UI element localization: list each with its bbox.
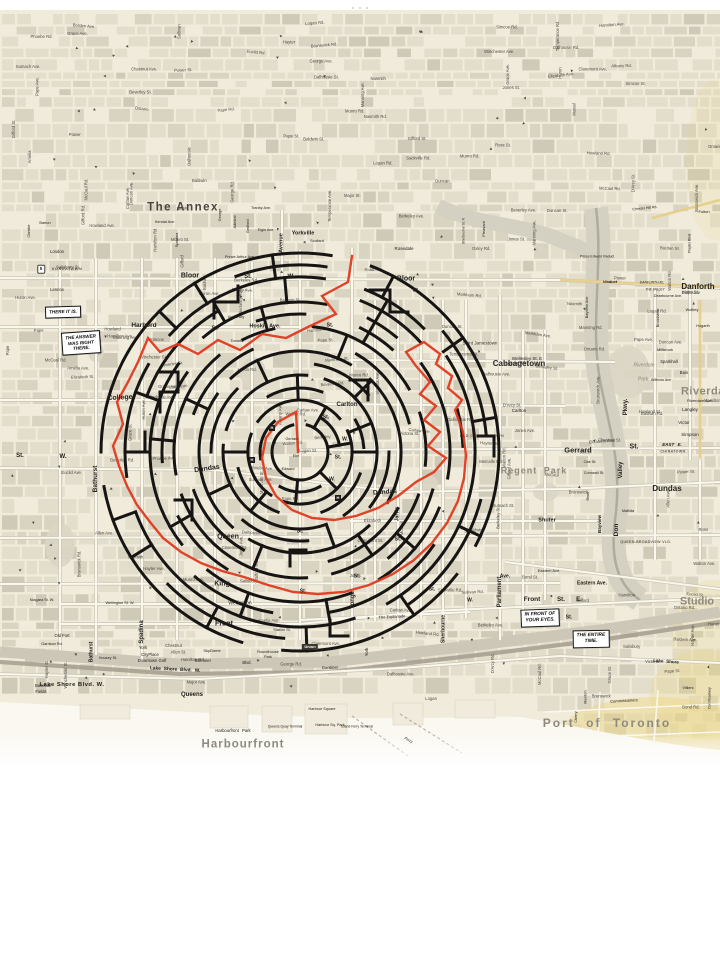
svg-text:Allen St.: Allen St. xyxy=(171,650,187,655)
svg-text:Borden St.: Borden St. xyxy=(660,245,680,251)
svg-text:Howland: Howland xyxy=(104,327,121,332)
svg-text:Baldwin: Baldwin xyxy=(192,178,207,183)
svg-text:Munro Rd.: Munro Rd. xyxy=(345,108,365,113)
svg-text:Sullivan Rd.: Sullivan Rd. xyxy=(461,589,484,595)
svg-text:Hamilton Rd.: Hamilton Rd. xyxy=(181,657,205,662)
svg-text:Dalhousie: Dalhousie xyxy=(187,147,192,166)
svg-text:McCaul Rd.: McCaul Rd. xyxy=(83,179,88,201)
svg-text:Brunswick Ave.: Brunswick Ave. xyxy=(694,184,699,212)
svg-text:Mutual: Mutual xyxy=(572,103,577,116)
svg-text:Hamilton Rd.: Hamilton Rd. xyxy=(152,227,157,251)
svg-text:Gifford: Gifford xyxy=(576,598,589,603)
svg-text:Sullivan: Sullivan xyxy=(176,24,181,39)
svg-text:Brunswick: Brunswick xyxy=(592,693,612,698)
svg-text:Logan: Logan xyxy=(425,696,437,701)
svg-text:Brunswick Rd.: Brunswick Rd. xyxy=(77,551,82,578)
svg-text:Pape: Pape xyxy=(5,345,10,355)
svg-text:Bond Rd.: Bond Rd. xyxy=(682,705,699,710)
svg-text:Ross St.: Ross St. xyxy=(495,142,511,147)
svg-text:Huron Ave.: Huron Ave. xyxy=(141,399,146,420)
svg-text:George Ave.: George Ave. xyxy=(310,58,333,63)
svg-text:Ontario Rd.: Ontario Rd. xyxy=(674,605,695,610)
svg-text:Berkeley Ave.: Berkeley Ave. xyxy=(399,213,425,218)
svg-text:Jones St.: Jones St. xyxy=(503,85,520,90)
svg-text:Power: Power xyxy=(69,132,81,137)
svg-text:Allen Ave.: Allen Ave. xyxy=(95,531,114,536)
svg-text:Grace St.: Grace St. xyxy=(607,666,612,684)
svg-text:George Rd.: George Rd. xyxy=(280,662,302,667)
svg-text:Claremont Ave.: Claremont Ave. xyxy=(579,67,608,72)
svg-text:Temperance Rd.: Temperance Rd. xyxy=(555,20,560,51)
svg-text:Ontario Rd.: Ontario Rd. xyxy=(584,347,605,352)
svg-text:Hayter St.: Hayter St. xyxy=(480,440,499,446)
svg-text:Oxley Rd.: Oxley Rd. xyxy=(472,246,490,251)
svg-text:McCaul: McCaul xyxy=(544,472,559,478)
svg-text:Hamilton: Hamilton xyxy=(619,593,636,598)
svg-text:D'Arcy Rd.: D'Arcy Rd. xyxy=(490,653,495,673)
svg-text:Power St.: Power St. xyxy=(174,67,192,73)
svg-text:Pape Ave.: Pape Ave. xyxy=(34,77,39,96)
svg-text:Major St.: Major St. xyxy=(682,289,699,294)
svg-text:Beverley St.: Beverley St. xyxy=(129,89,152,94)
svg-text:Nasmith: Nasmith xyxy=(567,301,583,306)
svg-text:Manning Ave.: Manning Ave. xyxy=(360,82,365,107)
svg-text:Jones St.: Jones St. xyxy=(508,236,525,241)
svg-text:Berkeley Ave.: Berkeley Ave. xyxy=(478,622,504,627)
svg-text:Simcoe St.: Simcoe St. xyxy=(626,81,646,86)
svg-text:Dalhousie Ave.: Dalhousie Ave. xyxy=(387,672,415,677)
svg-text:Elizabeth St.: Elizabeth St. xyxy=(71,374,95,380)
svg-text:Logan Rd.: Logan Rd. xyxy=(647,308,666,313)
svg-text:Sumach Ave.: Sumach Ave. xyxy=(16,64,41,69)
svg-text:Huron Ave.: Huron Ave. xyxy=(708,621,720,626)
svg-text:Beverley Ave.: Beverley Ave. xyxy=(511,208,537,213)
svg-text:Logan St.: Logan St. xyxy=(299,448,317,453)
svg-text:Munro Rd.: Munro Rd. xyxy=(349,373,369,378)
svg-text:Hayter St.: Hayter St. xyxy=(44,660,49,679)
svg-text:McCaul Rd.: McCaul Rd. xyxy=(537,663,542,685)
svg-text:Beverley Rd.: Beverley Rd. xyxy=(110,458,134,463)
svg-text:Simcoe Rd.: Simcoe Rd. xyxy=(496,25,518,30)
svg-text:Gifford St.: Gifford St. xyxy=(11,119,16,138)
svg-text:Major St.: Major St. xyxy=(344,193,361,198)
svg-text:Victoria: Victoria xyxy=(645,659,660,664)
svg-text:Grace Ave.: Grace Ave. xyxy=(67,31,88,36)
svg-text:Ross: Ross xyxy=(699,527,709,532)
svg-text:Nasmith Rd.: Nasmith Rd. xyxy=(364,114,387,119)
svg-text:Pape St.: Pape St. xyxy=(283,133,299,138)
svg-text:Allen Ave.: Allen Ave. xyxy=(666,489,671,508)
svg-text:Hamilton Ave.: Hamilton Ave. xyxy=(107,333,133,338)
svg-text:Hayter: Hayter xyxy=(283,40,296,45)
svg-text:Gifford St.: Gifford St. xyxy=(408,136,427,141)
svg-text:McCaul Rd.: McCaul Rd. xyxy=(45,357,67,362)
svg-text:Logan Rd.: Logan Rd. xyxy=(373,161,392,166)
svg-text:Duncan Ave.: Duncan Ave. xyxy=(129,182,134,206)
svg-text:Chestnut Ave.: Chestnut Ave. xyxy=(131,66,157,71)
svg-text:Winchester St.: Winchester St. xyxy=(140,354,167,359)
svg-text:Walton Rd.: Walton Rd. xyxy=(667,270,672,291)
svg-text:Howland Ave.: Howland Ave. xyxy=(89,223,115,228)
svg-text:Gifford Ave.: Gifford Ave. xyxy=(507,458,512,480)
svg-text:Salisbury: Salisbury xyxy=(623,644,641,649)
svg-text:Jones Ave.: Jones Ave. xyxy=(515,428,535,433)
svg-text:Munro: Munro xyxy=(176,205,189,211)
svg-text:Sackville Rd.: Sackville Rd. xyxy=(406,155,430,160)
svg-text:Pape Ave.: Pape Ave. xyxy=(634,337,653,342)
svg-text:Dalhousie Ave.: Dalhousie Ave. xyxy=(482,372,510,377)
svg-text:Power St.: Power St. xyxy=(677,469,695,475)
svg-text:George Rd.: George Rd. xyxy=(229,181,234,203)
svg-text:McCaul Rd.: McCaul Rd. xyxy=(599,186,621,192)
svg-text:Duncan Ave.: Duncan Ave. xyxy=(659,339,683,344)
svg-text:Munro St.: Munro St. xyxy=(171,237,189,242)
svg-text:Euclid Ave.: Euclid Ave. xyxy=(61,470,82,475)
svg-text:Nasmith: Nasmith xyxy=(371,76,387,81)
svg-text:Winchester St.: Winchester St. xyxy=(63,661,68,688)
svg-text:Hayter Ave.: Hayter Ave. xyxy=(143,566,165,571)
svg-text:Major Ave.: Major Ave. xyxy=(187,680,207,685)
svg-text:Manning Ave.: Manning Ave. xyxy=(532,220,537,245)
svg-text:Gifford: Gifford xyxy=(179,254,184,267)
svg-text:Jones: Jones xyxy=(350,573,361,578)
svg-text:Salisbury St.: Salisbury St. xyxy=(56,265,80,270)
svg-text:Amelia: Amelia xyxy=(27,150,32,163)
svg-text:Hamilton Rd.: Hamilton Rd. xyxy=(704,398,720,403)
svg-text:Albany Rd.: Albany Rd. xyxy=(611,63,632,68)
svg-text:Baldwin Rd.: Baldwin Rd. xyxy=(641,411,663,416)
svg-text:Ontario: Ontario xyxy=(708,144,720,149)
svg-text:Pape: Pape xyxy=(34,327,45,332)
svg-text:Pape St.: Pape St. xyxy=(317,337,333,343)
svg-text:Grace Ave.: Grace Ave. xyxy=(505,64,510,85)
svg-text:Phoebe Rd.: Phoebe Rd. xyxy=(31,34,53,39)
svg-text:D'Arcy St.: D'Arcy St. xyxy=(503,402,521,407)
svg-text:Elizabeth: Elizabeth xyxy=(364,518,382,523)
svg-text:Grace Ave.: Grace Ave. xyxy=(158,384,179,389)
svg-text:Duncan St.: Duncan St. xyxy=(547,208,568,213)
svg-text:Brunswick: Brunswick xyxy=(569,489,589,494)
svg-text:Walton Ave.: Walton Ave. xyxy=(693,561,715,566)
svg-text:Carlaw Ave.: Carlaw Ave. xyxy=(297,407,319,412)
svg-text:Dalhousie St.: Dalhousie St. xyxy=(314,74,339,79)
svg-text:Brunswick Ave.: Brunswick Ave. xyxy=(596,375,601,403)
svg-text:Markham: Markham xyxy=(97,337,102,355)
svg-text:Munro Rd.: Munro Rd. xyxy=(460,153,480,158)
svg-text:Baldwin St.: Baldwin St. xyxy=(303,136,324,141)
svg-text:Gifford Rd.: Gifford Rd. xyxy=(81,205,86,225)
svg-text:Amelia Ave.: Amelia Ave. xyxy=(67,365,89,370)
svg-text:Howland Rd.: Howland Rd. xyxy=(587,150,611,156)
svg-text:Berkeley St.: Berkeley St. xyxy=(496,506,501,529)
svg-text:Sumach St.: Sumach St. xyxy=(493,503,515,508)
svg-text:Temperance Ave.: Temperance Ave. xyxy=(327,190,332,222)
map-canvas: Logan Rd.Allen St.SumachMunroMajor St.Da… xyxy=(0,0,720,960)
svg-text:Claremont Ave.: Claremont Ave. xyxy=(312,641,341,646)
svg-text:Power: Power xyxy=(614,276,626,281)
svg-text:Huron Ave.: Huron Ave. xyxy=(15,295,36,300)
svg-text:Hayter Ave.: Hayter Ave. xyxy=(690,624,695,646)
svg-text:Bond St.: Bond St. xyxy=(522,574,538,579)
svg-text:Manning Rd.: Manning Rd. xyxy=(579,325,603,330)
svg-text:Chestnut: Chestnut xyxy=(165,643,183,648)
maze-map-artwork: Logan Rd.Allen St.SumachMunroMajor St.Da… xyxy=(0,0,720,960)
svg-text:Duncan: Duncan xyxy=(435,179,450,184)
svg-text:Winchester Ave.: Winchester Ave. xyxy=(484,49,514,54)
svg-text:D'Arcy St.: D'Arcy St. xyxy=(631,174,636,192)
svg-text:Sumach: Sumach xyxy=(74,350,90,355)
